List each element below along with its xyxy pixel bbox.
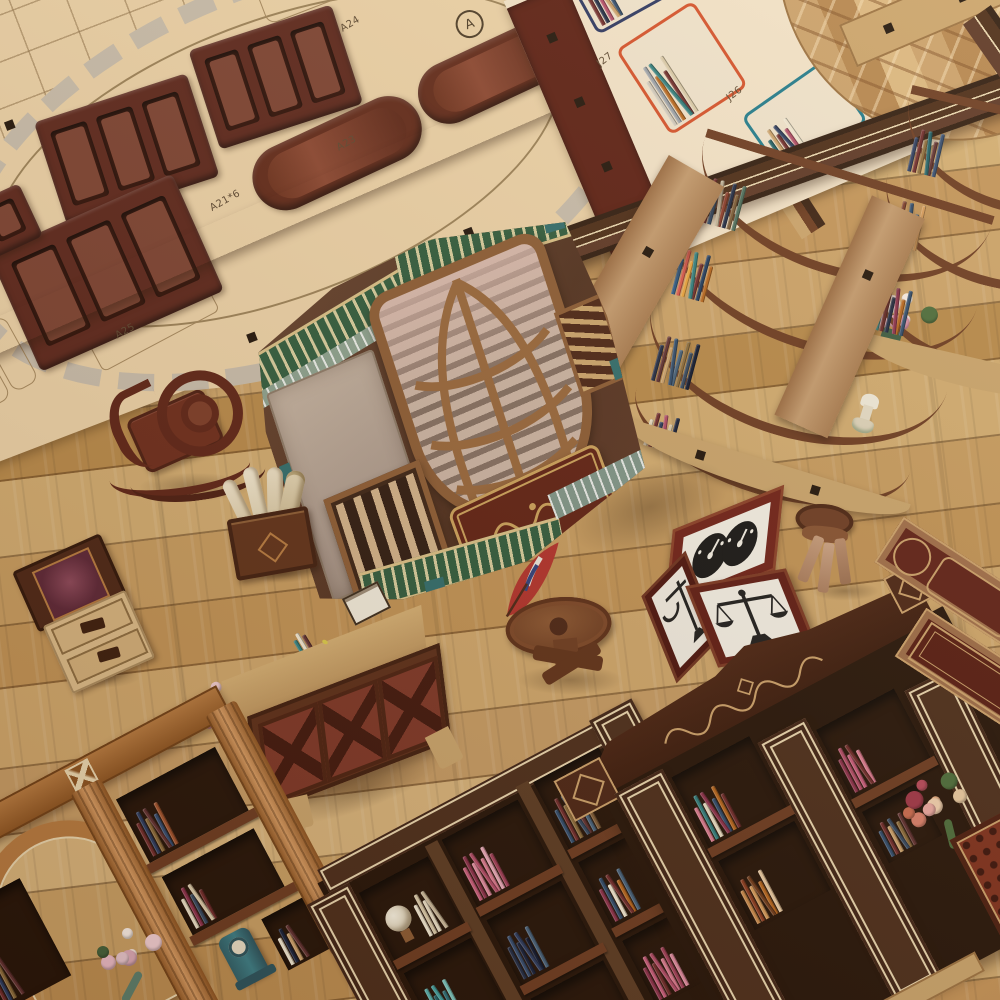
bouquet-bottom-left [84,926,170,1000]
stool-leg [834,538,851,585]
scroll-crate [219,463,327,587]
drawer-handle [80,617,106,634]
brush-sticker-cluster [616,0,749,136]
flower-petal [951,787,970,806]
flower-petal [145,934,162,951]
flower-petal [116,952,129,965]
pedestal-table [471,549,636,714]
crate-box [226,506,318,581]
drawer-handle [97,646,121,663]
photo-miniature-bookshop-kit: A10 A A24 A23 A21*6 A25 A22 J27 [0,0,1000,1000]
flower-petal [122,928,133,939]
crate-emblem [258,532,289,563]
tufted-square [318,678,388,783]
